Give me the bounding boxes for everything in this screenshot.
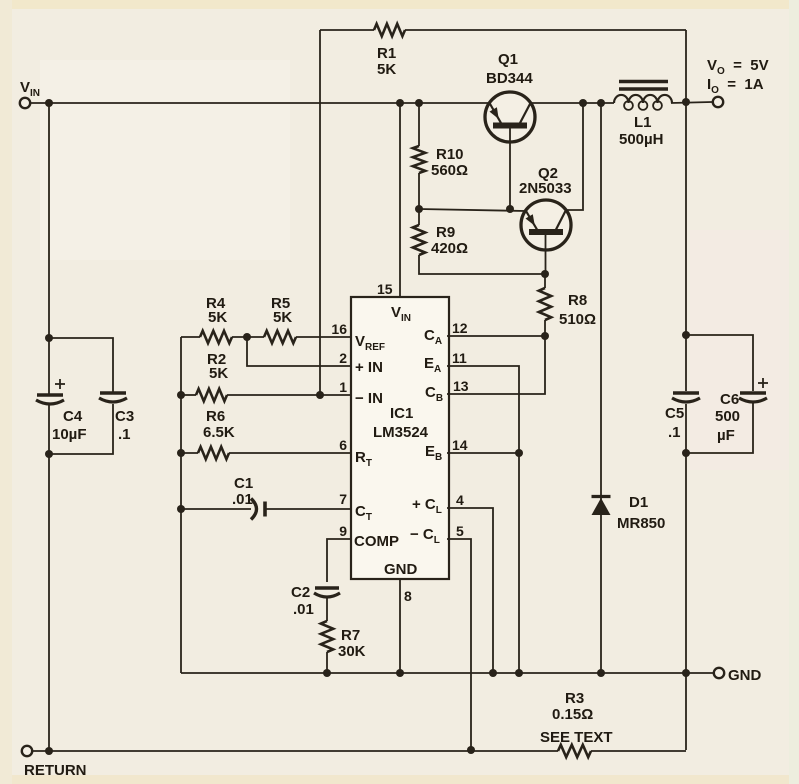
svg-text:R3: R3 [565, 690, 584, 707]
svg-text:1: 1 [339, 379, 347, 395]
svg-text:RETURN: RETURN [24, 762, 87, 779]
svg-text:COMP: COMP [354, 533, 399, 550]
svg-text:8: 8 [404, 588, 412, 604]
svg-text:R9: R9 [436, 224, 455, 241]
svg-text:C6: C6 [720, 391, 739, 408]
svg-text:LM3524: LM3524 [373, 424, 429, 441]
svg-text:5K: 5K [209, 365, 228, 382]
svg-text:C3: C3 [115, 408, 134, 425]
svg-text:11: 11 [452, 350, 467, 366]
svg-text:5K: 5K [377, 61, 396, 78]
svg-text:16: 16 [331, 321, 347, 337]
svg-text:2N5033: 2N5033 [519, 180, 572, 197]
svg-text:.1: .1 [118, 426, 131, 443]
svg-text:15: 15 [377, 281, 393, 297]
svg-text:5K: 5K [208, 309, 227, 326]
svg-text:5: 5 [456, 523, 464, 539]
svg-text:6: 6 [339, 437, 347, 453]
svg-text:SEE TEXT: SEE TEXT [540, 729, 613, 746]
svg-text:D1: D1 [629, 494, 648, 511]
svg-text:R10: R10 [436, 146, 464, 163]
svg-text:6.5K: 6.5K [203, 424, 235, 441]
svg-text:− IN: − IN [355, 390, 383, 407]
svg-text:C1: C1 [234, 475, 253, 492]
svg-text:GND: GND [728, 667, 762, 684]
svg-text:R7: R7 [341, 627, 360, 644]
svg-text:12: 12 [452, 320, 468, 336]
svg-text:IC1: IC1 [390, 405, 413, 422]
svg-text:.01: .01 [232, 491, 253, 508]
svg-text:C4: C4 [63, 408, 83, 425]
svg-text:C5: C5 [665, 405, 684, 422]
svg-text:BD344: BD344 [486, 70, 533, 87]
svg-text:30K: 30K [338, 643, 366, 660]
svg-text:GND: GND [384, 561, 418, 578]
svg-text:+ IN: + IN [355, 359, 383, 376]
svg-text:R1: R1 [377, 45, 396, 62]
svg-text:.01: .01 [293, 601, 314, 618]
svg-text:500: 500 [715, 408, 740, 425]
svg-text:9: 9 [339, 523, 347, 539]
svg-text:14: 14 [452, 437, 468, 453]
svg-text:0.15Ω: 0.15Ω [552, 706, 593, 723]
svg-text:R8: R8 [568, 292, 587, 309]
svg-text:10µF: 10µF [52, 426, 87, 443]
svg-text:MR850: MR850 [617, 515, 665, 532]
svg-text:420Ω: 420Ω [431, 240, 468, 257]
svg-text:C2: C2 [291, 584, 310, 601]
svg-text:.1: .1 [668, 424, 681, 441]
svg-text:510Ω: 510Ω [559, 311, 596, 328]
svg-text:µF: µF [717, 427, 735, 444]
svg-text:L1: L1 [634, 114, 652, 131]
svg-text:Q1: Q1 [498, 51, 518, 68]
svg-text:5K: 5K [273, 309, 292, 326]
svg-text:2: 2 [339, 350, 347, 366]
svg-text:4: 4 [456, 492, 464, 508]
svg-text:500µH: 500µH [619, 131, 664, 148]
svg-text:13: 13 [453, 378, 469, 394]
svg-text:7: 7 [339, 491, 347, 507]
svg-text:560Ω: 560Ω [431, 162, 468, 179]
svg-text:R6: R6 [206, 408, 225, 425]
